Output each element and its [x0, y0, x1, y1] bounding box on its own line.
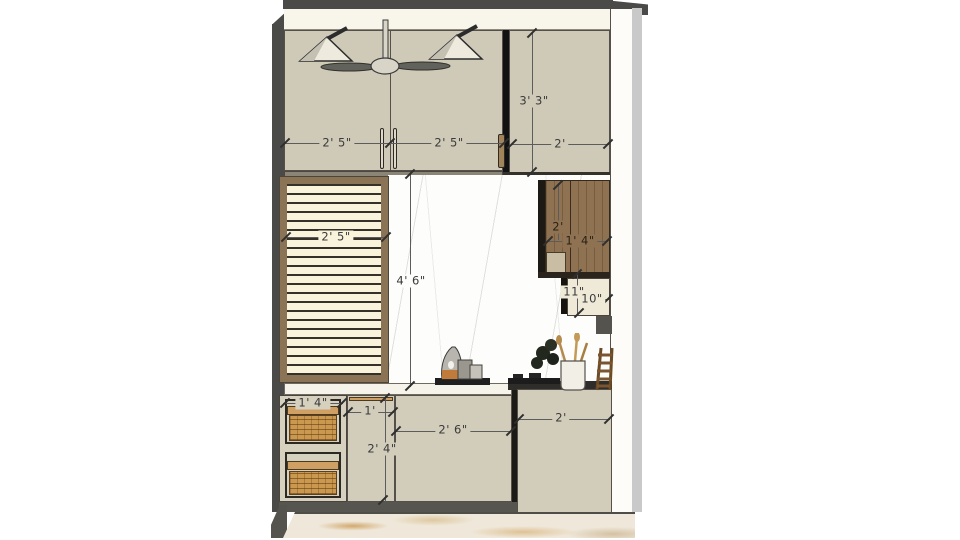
spoon-handle-3 [581, 343, 587, 361]
stove-burner-2 [529, 373, 541, 378]
basket-rail-bottom [287, 461, 339, 470]
dim-label-tall-cabinet-width: 2' [551, 138, 568, 151]
upper-left-door-handle [380, 128, 384, 169]
plant-leaves-3 [531, 357, 543, 369]
jug-dot [448, 361, 454, 369]
wood-cabinet-seam [570, 181, 571, 275]
right-wall-strip [610, 9, 632, 515]
kitchen-elevation-render: 2' 5" 2' 5" 2' 3' 3" 2' 5" 4' 6" 2' 1' 4… [0, 0, 960, 540]
stove [508, 378, 560, 384]
counter-items [425, 333, 615, 393]
fan-blade-left [321, 63, 377, 71]
dim-label-base-cabinet-height: 2' 4" [364, 443, 399, 456]
utensil-cup [561, 361, 585, 390]
spoon-head-1 [556, 335, 562, 345]
pendant-left-rod [327, 28, 347, 39]
wood-cabinet-open-flap [546, 252, 566, 274]
louver-window [280, 177, 388, 382]
pendant-right-rod [457, 26, 477, 37]
stove-burner-1 [513, 374, 523, 378]
ceiling-fixtures [284, 18, 506, 98]
dim-label-base-wide-width: 2' 6" [435, 424, 470, 437]
dim-label-basket-unit-width: 1' 4" [295, 397, 330, 410]
dim-label-wood-cabinet-height: 2' [549, 221, 566, 234]
container-box-2 [470, 365, 482, 379]
plant-leaves-2 [545, 339, 557, 351]
dim-label-window-width: 2' 5" [318, 231, 353, 244]
fan-hub [371, 58, 399, 74]
plant-leaves-4 [547, 353, 559, 365]
ceiling-edge-band [283, 0, 613, 9]
dim-label-upper-left-door: 2' 5" [319, 137, 354, 150]
fan-pole [383, 20, 388, 64]
dim-label-tall-cabinet-height: 3' 3" [516, 95, 551, 108]
marble-floor [283, 512, 635, 538]
dim-label-base-narrow-width: 1' [361, 405, 378, 418]
wicker-basket-bottom [289, 471, 337, 495]
fan-blade-right [394, 62, 450, 70]
spoon-head-2 [574, 333, 580, 342]
dim-label-shelf-width: 10" [578, 293, 605, 306]
base-wide-door [395, 395, 512, 502]
wicker-basket-top [289, 415, 337, 441]
upper-right-door-handle [393, 128, 397, 169]
tall-cabinet-handle [498, 134, 505, 168]
shelf-shadow [596, 316, 612, 334]
dim-label-base-right-width: 2' [552, 412, 569, 425]
base-right-unit [517, 389, 612, 515]
window-louvers [287, 184, 381, 375]
plinth [279, 502, 517, 512]
dim-label-wood-cabinet-width: 1' 4" [562, 235, 597, 248]
dim-label-upper-right-door: 2' 5" [431, 137, 466, 150]
dim-label-backsplash-height: 4' 6" [393, 275, 428, 288]
right-outer-wall [632, 8, 642, 512]
